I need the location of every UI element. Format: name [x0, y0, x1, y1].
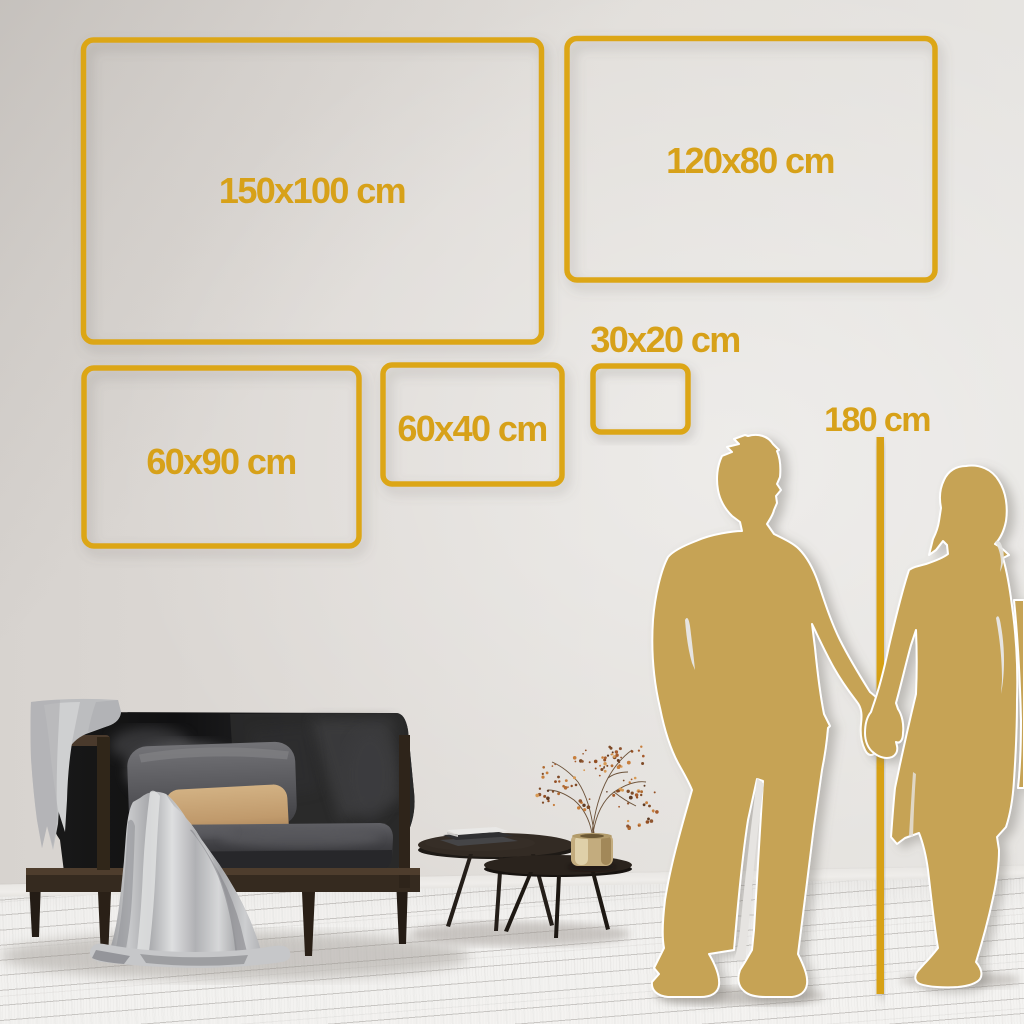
svg-text:150x100 cm: 150x100 cm [219, 170, 405, 211]
svg-text:180 cm: 180 cm [824, 401, 930, 439]
svg-text:30x20 cm: 30x20 cm [590, 319, 739, 360]
svg-text:120x80 cm: 120x80 cm [666, 140, 834, 181]
svg-text:60x40 cm: 60x40 cm [397, 408, 546, 449]
svg-text:60x90 cm: 60x90 cm [146, 441, 295, 482]
